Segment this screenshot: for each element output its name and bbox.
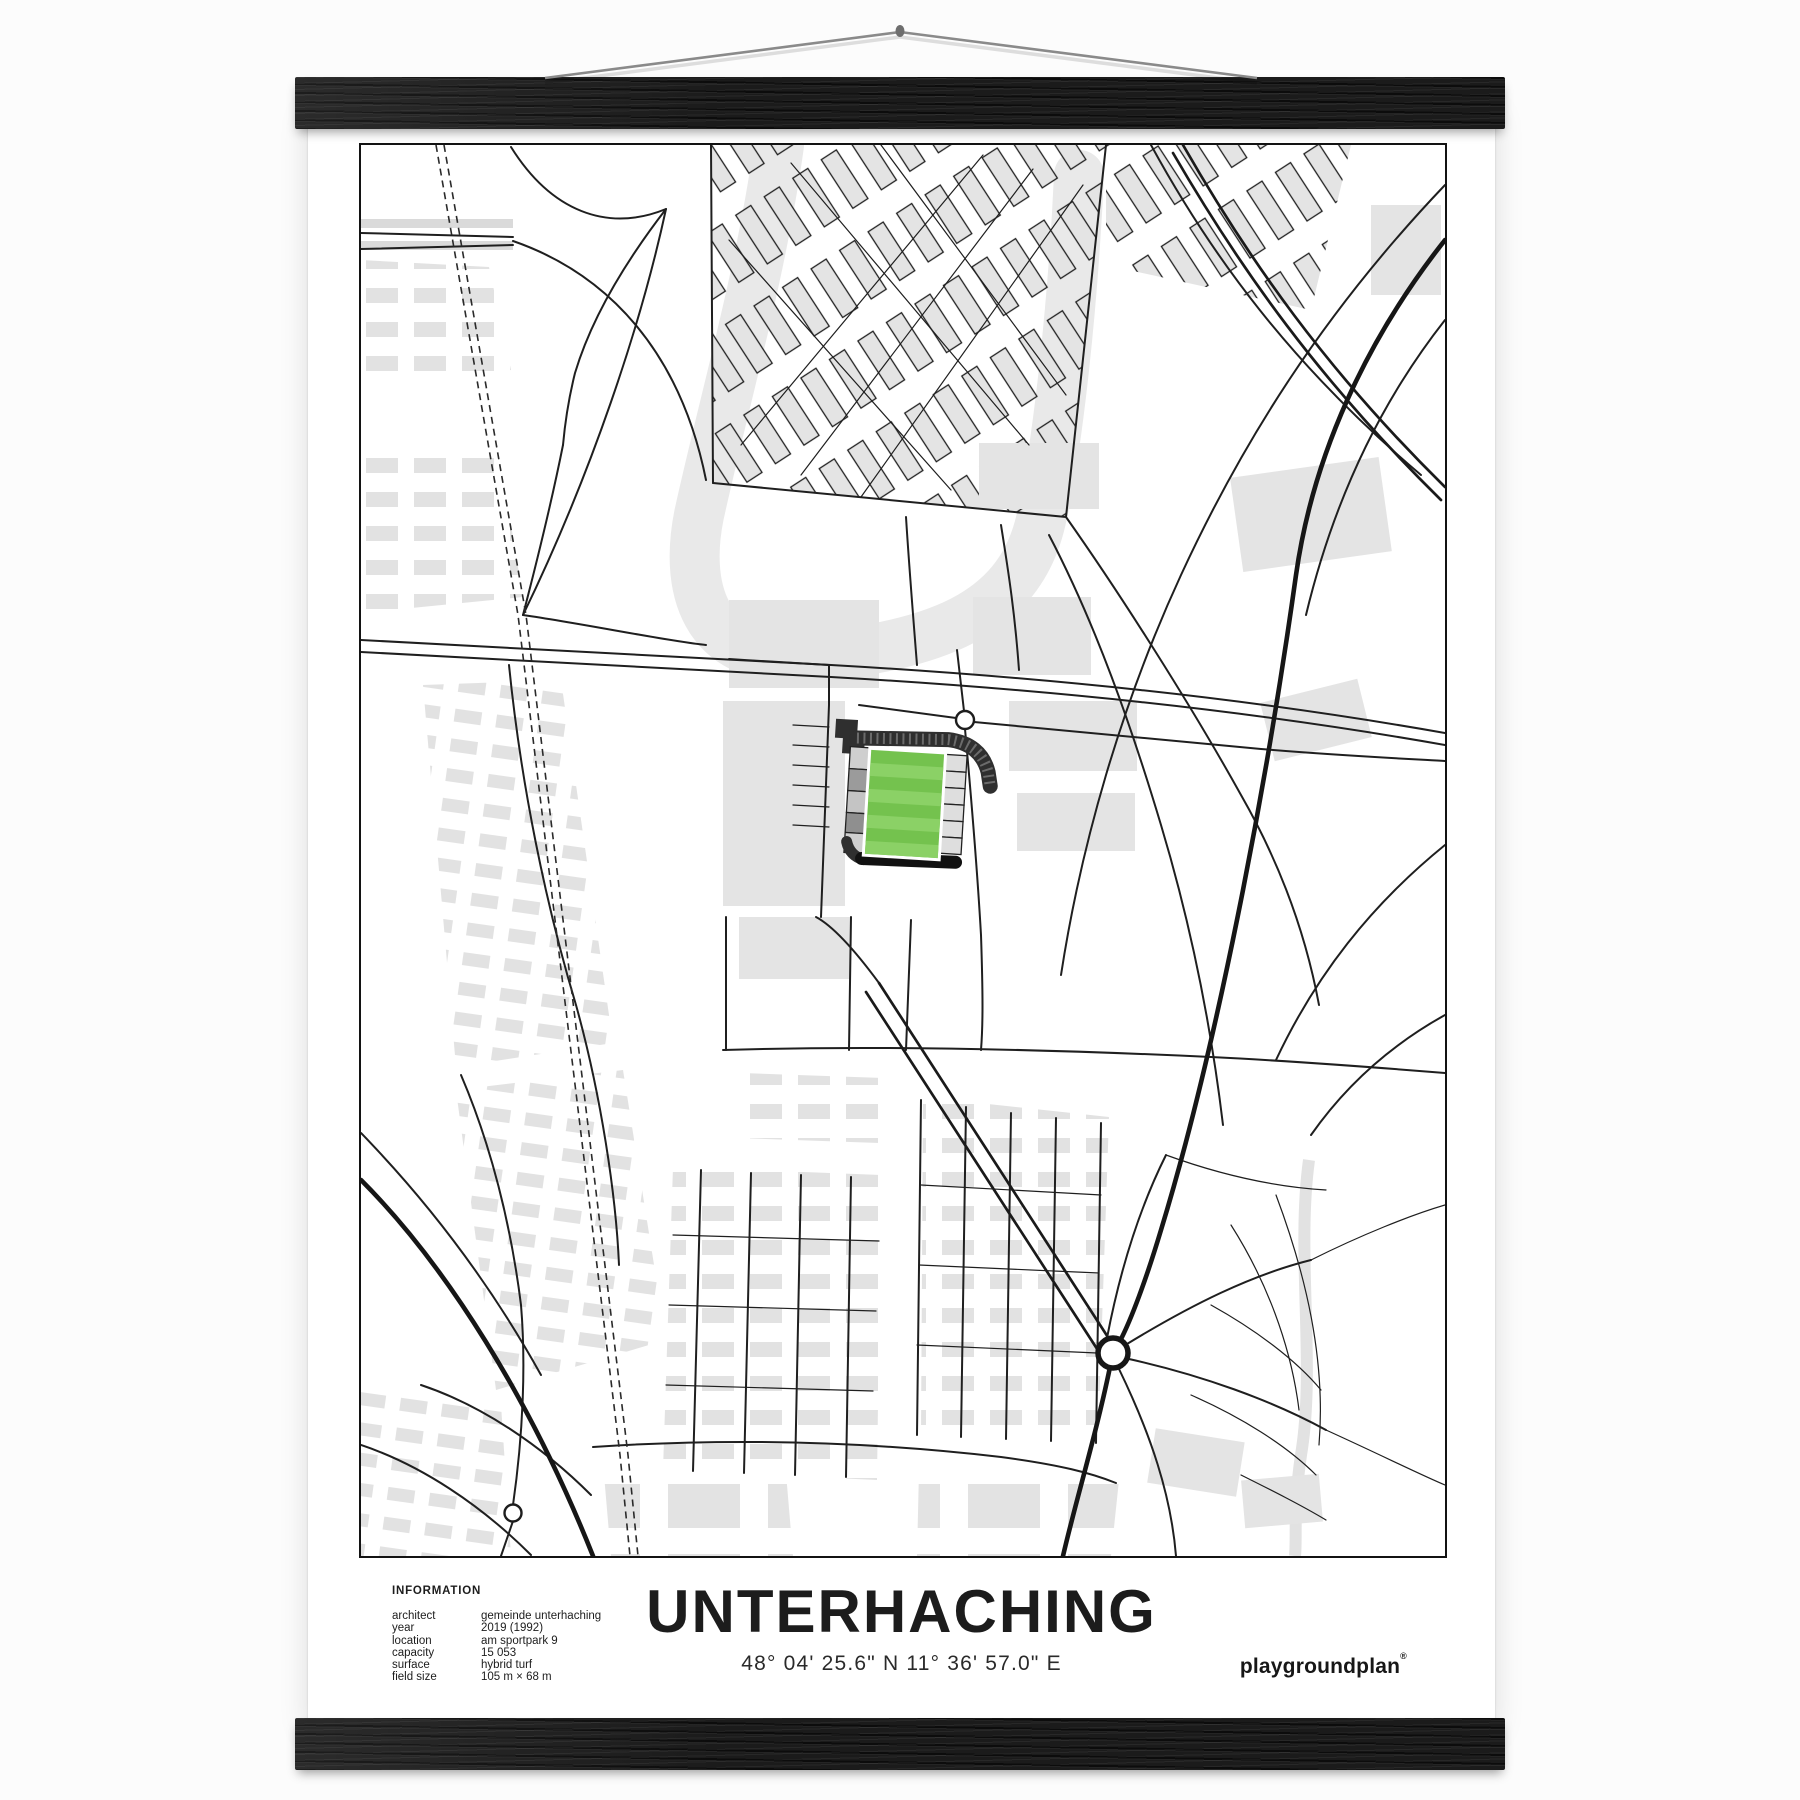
- stadium: [828, 719, 994, 867]
- string-shadow: [545, 37, 1257, 83]
- map-frame: .ln{fill:none;stroke:#1f1f1f;stroke-widt…: [359, 143, 1447, 1558]
- poster-paper: .ln{fill:none;stroke:#1f1f1f;stroke-widt…: [308, 100, 1495, 1720]
- string-line: [545, 32, 1257, 78]
- roundabout-large: [1098, 1338, 1128, 1368]
- hanger-nail: [896, 25, 905, 37]
- poster-product-scene: .ln{fill:none;stroke:#1f1f1f;stroke-widt…: [0, 0, 1800, 1800]
- brand-logo: playgroundplan®: [1240, 1651, 1407, 1679]
- poster-hanger-rail-bottom: [295, 1718, 1505, 1770]
- roundabout-small: [956, 711, 974, 729]
- roundabout-southwest: [505, 1505, 522, 1522]
- brand-name: playgroundplan: [1240, 1655, 1400, 1678]
- stadium-street-map: .ln{fill:none;stroke:#1f1f1f;stroke-widt…: [361, 145, 1445, 1556]
- stadium-pitch: [862, 747, 948, 862]
- registered-mark: ®: [1400, 1651, 1407, 1661]
- poster-title: UNTERHACHING: [308, 1582, 1495, 1642]
- hanger-string: [0, 0, 1800, 130]
